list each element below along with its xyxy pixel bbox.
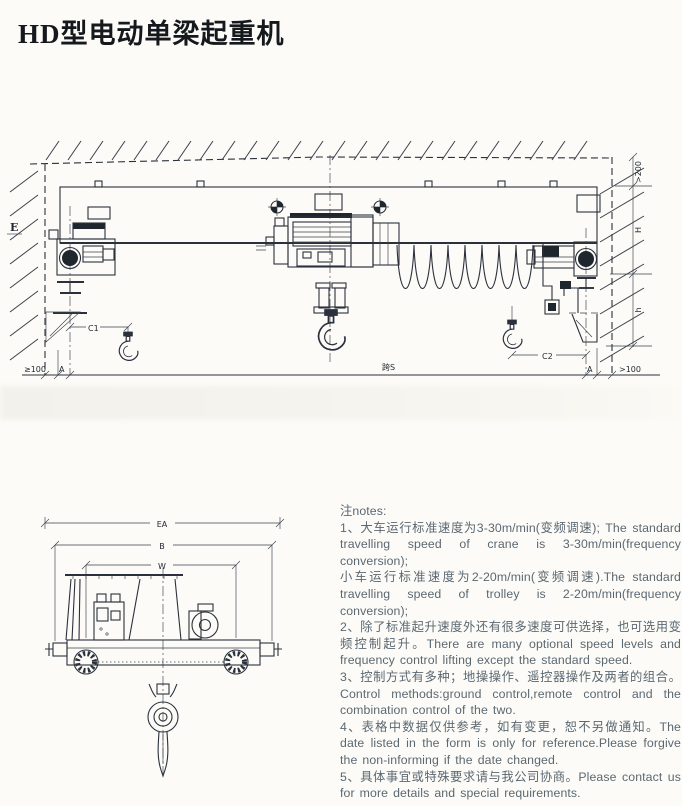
end-view-carriage	[45, 640, 282, 674]
right-wall-dimensions: >200 H h	[600, 153, 652, 375]
dim-label-c1: C1	[88, 324, 99, 333]
left-wall: E	[7, 164, 45, 375]
notes-block: 注notes: 1、大车运行标准速度为3-30m/min(变频调速); The …	[340, 503, 681, 802]
note-item-1b: 小车运行标准速度为2-20m/min(变频调速).The standard tr…	[340, 569, 681, 619]
dim-label-clearance-right: >100	[619, 365, 641, 374]
dim-label-span: 跨S	[382, 363, 395, 372]
note-item-3: 3、控制方式有多种；地操操作、遥控器操作及两者的组合。Control metho…	[340, 669, 681, 719]
wheel-icon	[224, 650, 248, 674]
festoon-cable-loops	[397, 245, 533, 289]
dim-label-height-H: H	[634, 227, 643, 233]
left-end-carriage	[46, 206, 115, 375]
notes-heading: 注notes:	[340, 503, 681, 520]
catalog-page: HD型电动单梁起重机 E	[0, 0, 682, 806]
dim-label-ceiling-clearance: >200	[634, 161, 643, 183]
center-mark-icon	[268, 198, 286, 216]
note-item-5: 5、具体事宜或特殊要求请与我公司协商。Please contact us for…	[340, 769, 681, 802]
dim-label-w: W	[158, 562, 166, 571]
wheel-icon	[74, 650, 98, 674]
end-view-dimensions: EA B W	[41, 517, 284, 641]
note-item-2: 2、除了标准起升速度外还有很多速度可供选择，也可选用变频控制起升。There a…	[340, 619, 681, 669]
crane-elevation-drawing: E >200 H h	[0, 100, 682, 400]
dim-label-c2: C2	[542, 352, 553, 361]
dim-label-a-right: A	[587, 365, 593, 374]
right-end-carriage	[527, 228, 597, 375]
crane-end-view-drawing: EA B W	[25, 498, 335, 806]
note-item-1: 1、大车运行标准速度为3-30m/min(变频调速); The standard…	[340, 520, 681, 570]
end-view-hoist	[94, 594, 124, 640]
dim-label-a-left: A	[59, 365, 65, 374]
dim-label-b: B	[159, 542, 165, 551]
ceiling-hatch	[30, 141, 610, 164]
dim-label-height-h: h	[634, 307, 643, 312]
hook-block-main	[314, 283, 348, 350]
page-title: HD型电动单梁起重机	[18, 12, 285, 51]
note-item-4: 4、表格中数据仅供参考，如有变更，恕不另做通知。The date listed …	[340, 719, 681, 769]
floor-line-dimensions: ≥100 A 跨S A >100	[22, 348, 660, 379]
dim-label-ea: EA	[157, 520, 168, 529]
hook-approach-left: C1	[66, 323, 138, 360]
end-view-motor	[189, 604, 218, 639]
dim-label-wall-e: E	[10, 221, 18, 234]
center-mark-icon	[371, 198, 389, 216]
dim-label-clearance-left: ≥100	[24, 365, 46, 374]
